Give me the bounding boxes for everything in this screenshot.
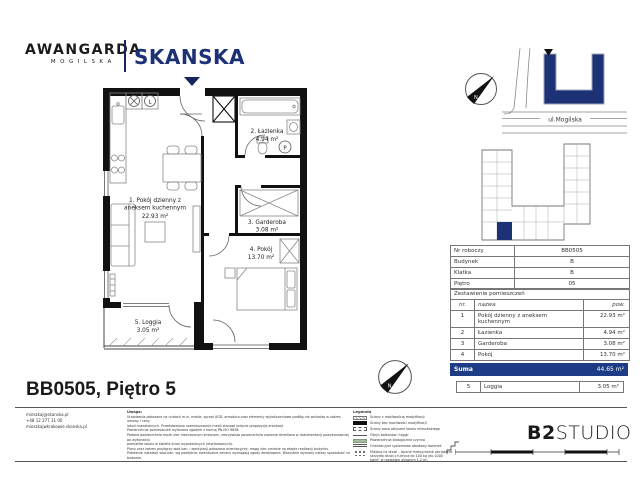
fixed-wall-swatch-icon bbox=[353, 421, 367, 425]
door-space-swatch-icon bbox=[353, 450, 367, 456]
b2studio-logo: B2STUDIO bbox=[527, 422, 631, 444]
fridge-symbol: L bbox=[148, 99, 152, 105]
room-nr: 3 bbox=[451, 339, 475, 349]
legend-label: Miejsca na drzwi – łączne maksymalne obc… bbox=[370, 450, 453, 463]
col-header-nr: nr. bbox=[451, 300, 475, 310]
compass-icon: N bbox=[376, 358, 414, 396]
loggia-nr: 5 bbox=[457, 382, 481, 392]
b2studio-logo-bold: B2 bbox=[527, 422, 556, 444]
building-footprint bbox=[544, 54, 604, 104]
summary-label: Suma bbox=[454, 366, 473, 373]
legend-item: Orientacyjne systemowe obudowy łazienek bbox=[353, 444, 453, 448]
room5-label: 5. Loggia bbox=[135, 320, 162, 326]
street-label: ul.Mogilska bbox=[548, 117, 582, 124]
legend-label: Ściany poza obrysem lokalu mieszkalnego bbox=[370, 427, 440, 431]
col-header-area: pow. bbox=[583, 300, 629, 310]
legend-item: Miejsca na drzwi – łączne maksymalne obc… bbox=[353, 450, 453, 463]
bathroom-fixtures bbox=[240, 98, 300, 154]
room4-area: 13.70 m² bbox=[248, 254, 274, 261]
table-row: Nr roboczy BB0505 bbox=[451, 246, 629, 257]
modifiable-wall-swatch-icon bbox=[353, 416, 367, 420]
bathroom-enclosure-swatch-icon bbox=[353, 444, 367, 447]
compass-north-label: N bbox=[474, 95, 478, 101]
dining-set bbox=[163, 146, 201, 190]
room4-label: 4. Pokój bbox=[250, 246, 273, 253]
info-value: B bbox=[515, 257, 629, 267]
location-map: ul.Mogilska bbox=[500, 46, 630, 141]
outer-walls bbox=[103, 77, 307, 350]
room-name: Pokój bbox=[475, 350, 583, 360]
room-nr: 4 bbox=[451, 350, 475, 360]
shaft bbox=[213, 96, 235, 122]
outside-wall-swatch-icon bbox=[353, 427, 367, 431]
rooms-table: Zestawienie pomieszczeń nr. nazwa pow. 1… bbox=[450, 288, 630, 361]
info-label: Klatka bbox=[451, 268, 515, 278]
room-area: 3.08 m² bbox=[583, 339, 629, 349]
legend: Legenda Ściany z możliwością modyfikacji… bbox=[353, 410, 453, 464]
info-label: Nr roboczy bbox=[451, 246, 515, 256]
legend-item: Powierzchnia biologicznie czynna bbox=[353, 438, 453, 442]
note-line: Podana powierzchnia może ulec nieznaczny… bbox=[127, 433, 351, 442]
summary-total: 44.65 m² bbox=[597, 366, 624, 373]
room-name: Garderoba bbox=[475, 339, 583, 349]
legend-label: Ściany z możliwością modyfikacji bbox=[370, 415, 425, 419]
table-header-row: nr. nazwa pow. bbox=[451, 300, 629, 311]
logo-divider bbox=[124, 40, 126, 72]
floorplan-sheet: AWANGARDA MOGILSKA SKANSKA bbox=[0, 0, 640, 480]
loggia-name: Loggia bbox=[481, 382, 579, 392]
balcony-outline-swatch-icon bbox=[353, 435, 367, 436]
loggia-row: 5 Loggia 3.05 m² bbox=[456, 381, 624, 393]
room-nr: 2 bbox=[451, 328, 475, 338]
scale-bar bbox=[455, 448, 623, 456]
room-area: 22.93 m² bbox=[583, 311, 629, 327]
note-line: Położenie instalacji wod-kan. wg podejśc… bbox=[127, 451, 351, 460]
disclaimer-notes: Uwaga: Urządzenia pokazane na rzutach m.… bbox=[127, 410, 351, 461]
legend-label: Obrys balkonów i loggii bbox=[370, 433, 408, 437]
info-value: BB0505 bbox=[515, 246, 629, 256]
room-area: 13.70 m² bbox=[583, 350, 629, 360]
divider bbox=[15, 461, 627, 462]
room1-label-line1: 1. Pokój dzienny z bbox=[129, 197, 181, 204]
room1-area: 22.93 m² bbox=[142, 213, 168, 220]
floor-plan: L P bbox=[101, 76, 313, 366]
room3-area: 3.08 m² bbox=[256, 227, 279, 234]
skanska-logo: SKANSKA bbox=[134, 45, 245, 69]
table-row: Budynek B bbox=[451, 257, 629, 268]
table-row: 1 Pokój dzienny z aneksem kuchennym 22.9… bbox=[451, 311, 629, 328]
table-row: 3 Garderoba 3.08 m² bbox=[451, 339, 629, 350]
room-name: Łazienka bbox=[475, 328, 583, 338]
summary-bar: Suma 44.65 m² bbox=[450, 363, 628, 376]
room1-label-line2: aneksem kuchennym bbox=[124, 206, 186, 212]
unit-info-table: Nr roboczy BB0505 Budynek B Klatka B Pię… bbox=[450, 245, 630, 290]
room-name: Pokój dzienny z aneksem kuchennym bbox=[475, 311, 583, 327]
entrance-marker-icon bbox=[184, 77, 200, 86]
laundry-symbol: P bbox=[283, 145, 287, 151]
room-nr: 1 bbox=[451, 311, 475, 327]
building-site-plan bbox=[478, 142, 594, 246]
legend-title: Legenda bbox=[353, 410, 453, 414]
compass-icon: N bbox=[463, 71, 499, 107]
legend-item: Ściany bez możliwości modyfikacji bbox=[353, 421, 453, 425]
legend-item: Obrys balkonów i loggii bbox=[353, 433, 453, 437]
legend-item: Ściany z możliwością modyfikacji bbox=[353, 415, 453, 419]
legend-label: Orientacyjne systemowe obudowy łazienek bbox=[370, 444, 442, 448]
col-header-name: nazwa bbox=[475, 300, 583, 310]
table-row: Klatka B bbox=[451, 268, 629, 279]
room5-area: 3.05 m² bbox=[137, 327, 160, 334]
rooms-table-title: Zestawienie pomieszczeń bbox=[451, 289, 629, 300]
note-line: Urządzenia pokazane na rzutach m.in. meb… bbox=[127, 415, 351, 424]
highlighted-unit bbox=[497, 222, 512, 240]
info-label: Budynek bbox=[451, 257, 515, 267]
green-area-swatch-icon bbox=[353, 439, 367, 443]
room3-label: 3. Garderoba bbox=[248, 220, 286, 226]
room-area: 4.94 m² bbox=[583, 328, 629, 338]
loggia-area: 3.05 m² bbox=[579, 382, 623, 392]
divider bbox=[15, 407, 627, 408]
page-title: BB0505, Piętro 5 bbox=[26, 379, 176, 401]
room2-area: 4.94 m² bbox=[256, 136, 279, 143]
room2-label: 2. Łazienka bbox=[251, 129, 284, 135]
legend-label: Powierzchnia biologicznie czynna bbox=[370, 438, 425, 442]
legend-item: Ściany poza obrysem lokalu mieszkalnego bbox=[353, 427, 453, 431]
legend-label: Ściany bez możliwości modyfikacji bbox=[370, 421, 427, 425]
contact-website: mieszkajwkrakowie.skanska.pl bbox=[26, 424, 87, 430]
compass-north-label: N bbox=[388, 384, 392, 390]
contact-block: mieszkaj@skanska.pl +48 12 277 31 00 mie… bbox=[26, 412, 87, 430]
b2studio-logo-light: STUDIO bbox=[556, 422, 632, 444]
table-row: 2 Łazienka 4.94 m² bbox=[451, 328, 629, 339]
info-value: B bbox=[515, 268, 629, 278]
table-row: 4 Pokój 13.70 m² bbox=[451, 350, 629, 361]
bed bbox=[225, 268, 297, 310]
